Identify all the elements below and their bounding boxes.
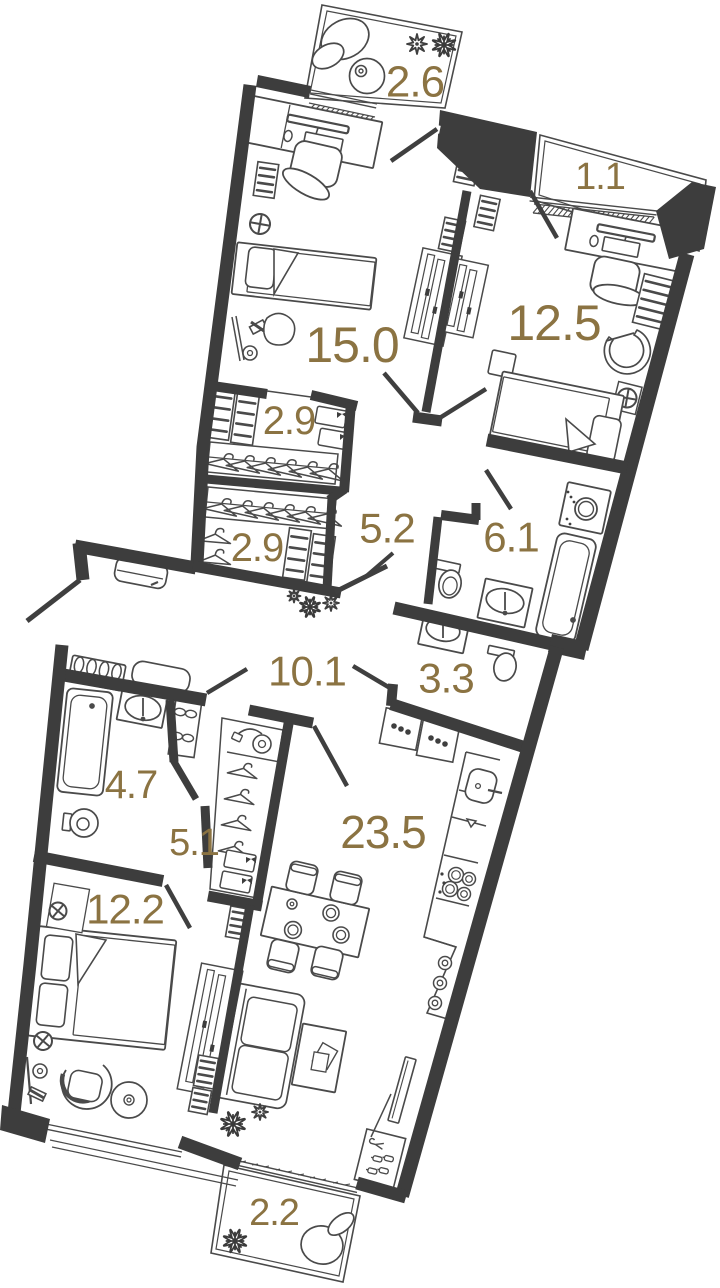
svg-text:12.5: 12.5: [507, 295, 600, 351]
svg-text:4.7: 4.7: [105, 763, 158, 807]
svg-text:6.1: 6.1: [483, 514, 538, 561]
svg-text:12.2: 12.2: [86, 886, 164, 933]
svg-text:2.9: 2.9: [231, 526, 284, 570]
svg-text:2.2: 2.2: [249, 1192, 299, 1234]
svg-text:15.0: 15.0: [305, 317, 398, 373]
svg-text:2.9: 2.9: [263, 399, 316, 443]
svg-text:23.5: 23.5: [340, 806, 426, 858]
svg-text:1.1: 1.1: [575, 156, 625, 198]
svg-text:5.2: 5.2: [359, 505, 414, 552]
svg-text:10.1: 10.1: [268, 648, 346, 695]
svg-text:2.6: 2.6: [386, 58, 444, 107]
svg-text:3.3: 3.3: [418, 655, 473, 702]
svg-text:5.1: 5.1: [169, 822, 219, 864]
